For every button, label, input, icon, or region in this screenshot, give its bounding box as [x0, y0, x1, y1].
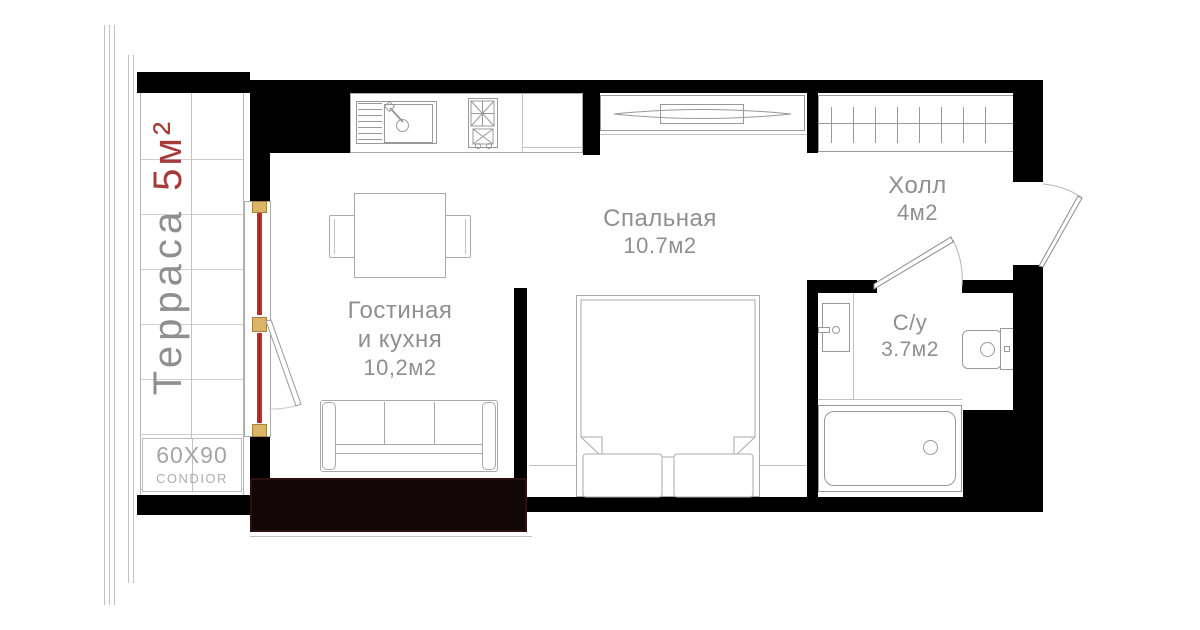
terrace-door-leaf [266, 320, 301, 406]
floor-plan: 60X90 CONDIOR Терраса 5м² [0, 0, 1200, 630]
sink-faucet [385, 102, 403, 122]
entrance-door-leaf [1039, 196, 1082, 267]
terrace-door-arc [269, 405, 298, 409]
bathroom-door-arc [953, 240, 962, 286]
bed-blanket [581, 300, 755, 457]
hob-burners [471, 101, 494, 149]
window-lens [614, 110, 791, 119]
bed-pillow-left [583, 454, 662, 497]
bed-pillow-right [674, 454, 753, 497]
linework-overlay [0, 0, 1200, 630]
terrace-door [266, 320, 301, 409]
entrance-door-arc [1043, 184, 1081, 197]
bathroom-door [874, 237, 962, 289]
entrance-door [1039, 184, 1082, 267]
bathroom-door-leaf [874, 237, 953, 289]
